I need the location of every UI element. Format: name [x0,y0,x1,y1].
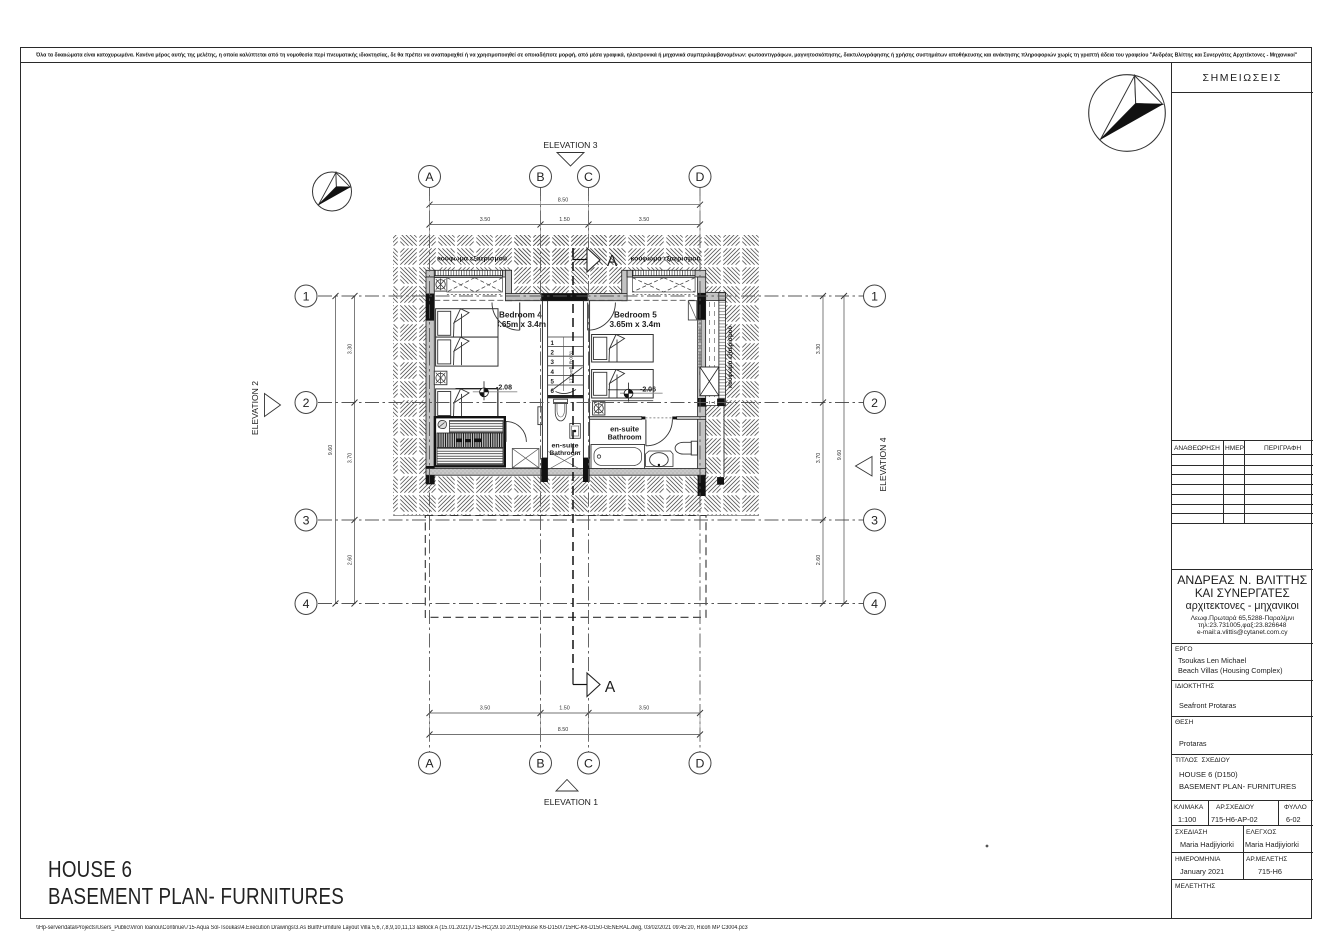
svg-text:1.50: 1.50 [559,706,570,712]
svg-text:B: B [536,170,544,184]
svg-text:9.60: 9.60 [837,450,843,461]
svg-text:5: 5 [551,378,555,385]
svg-text:4: 4 [551,369,555,376]
svg-text:Bathroom: Bathroom [608,433,642,442]
svg-text:1: 1 [551,340,555,347]
svg-text:3.30: 3.30 [348,344,354,355]
svg-text:8.50: 8.50 [558,727,569,733]
svg-text:3.30: 3.30 [816,344,822,355]
svg-text:C: C [584,170,593,184]
svg-text:2.60: 2.60 [348,555,354,566]
svg-text:-2.06: -2.06 [640,384,656,393]
svg-text:2: 2 [871,396,878,410]
svg-text:2: 2 [303,396,310,410]
svg-text:1: 1 [303,289,310,303]
svg-text:Bathroom: Bathroom [550,450,581,457]
svg-text:C: C [584,756,593,770]
svg-text:A: A [425,170,434,184]
svg-text:D: D [696,756,705,770]
svg-text:3.70: 3.70 [348,453,354,464]
svg-text:B: B [536,756,544,770]
svg-text:3.50: 3.50 [480,706,491,712]
svg-text:3.65m x 3.4m: 3.65m x 3.4m [610,320,661,329]
svg-text:ELEVATION 3: ELEVATION 3 [543,140,597,150]
svg-text:3.70: 3.70 [816,453,822,464]
svg-text:ELEVATION 1: ELEVATION 1 [544,797,598,807]
svg-text:κούφωμα εξαερισμού: κούφωμα εξαερισμού [727,326,734,388]
svg-text:D: D [696,170,705,184]
svg-text:1.50: 1.50 [559,217,570,223]
svg-text:1: 1 [871,289,878,303]
svg-text:ELEVATION 4: ELEVATION 4 [878,437,888,491]
svg-text:8.50: 8.50 [558,198,569,204]
svg-text:κούφωμα εξαερισμού: κούφωμα εξαερισμού [437,256,507,263]
svg-text:en-suite: en-suite [552,443,579,450]
svg-text:2: 2 [551,350,555,357]
svg-text:A: A [605,679,616,696]
svg-text:Bedroom 4: Bedroom 4 [499,311,542,320]
svg-text:A: A [425,756,434,770]
svg-text:Bedroom 5: Bedroom 5 [614,311,657,320]
svg-text:3.50: 3.50 [639,217,650,223]
svg-text:-2.08: -2.08 [496,383,512,392]
svg-text:ELEVATION 2: ELEVATION 2 [250,381,260,435]
svg-text:4: 4 [871,597,878,611]
svg-text:A: A [607,253,618,270]
svg-text:3: 3 [303,513,310,527]
svg-text:3: 3 [871,513,878,527]
svg-text:3: 3 [551,359,555,366]
svg-text:4: 4 [303,597,310,611]
svg-text:3.50: 3.50 [480,217,491,223]
svg-text:κούφωμα εξαερισμού: κούφωμα εξαερισμού [631,256,701,263]
svg-text:9.60: 9.60 [328,445,334,456]
svg-text:2.60: 2.60 [816,555,822,566]
svg-text:3.50: 3.50 [639,706,650,712]
